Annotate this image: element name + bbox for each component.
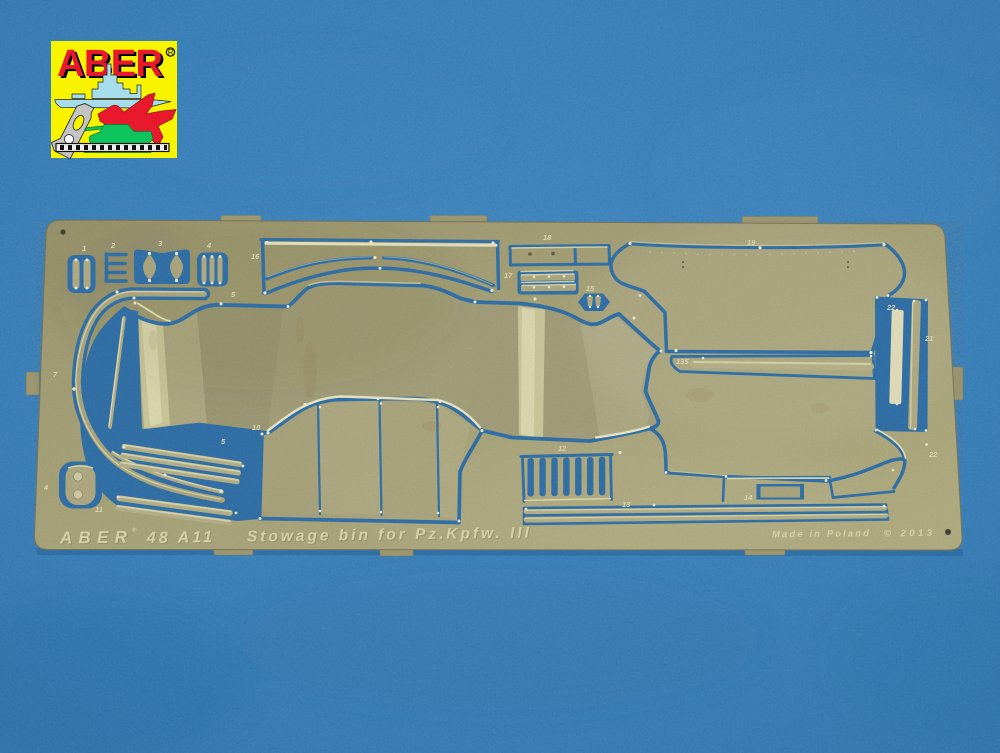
svg-text:R: R [168,48,174,57]
